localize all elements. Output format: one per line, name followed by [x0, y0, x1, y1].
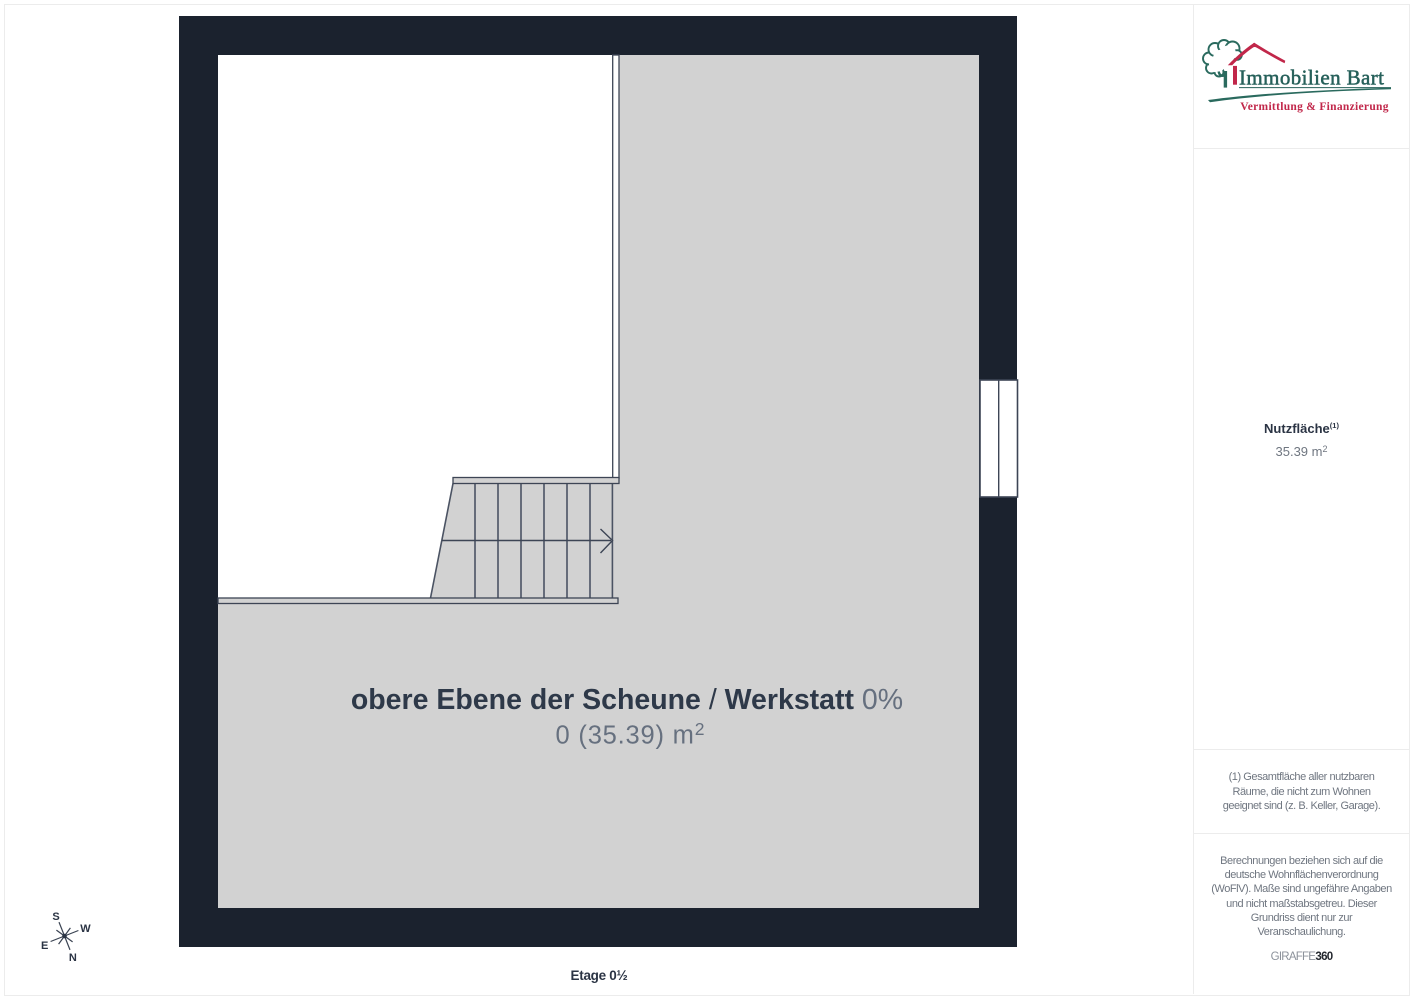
- svg-text:obere Ebene der Scheune / Werk: obere Ebene der Scheune / Werkstatt 0%: [351, 684, 903, 716]
- svg-text:S: S: [52, 911, 59, 923]
- svg-text:E: E: [41, 940, 48, 952]
- svg-text:Vermittlung & Finanzierung: Vermittlung & Finanzierung: [1240, 101, 1389, 113]
- svg-text:Immobilien Bart: Immobilien Bart: [1239, 66, 1384, 90]
- svg-text:0 (35.39) m2: 0 (35.39) m2: [556, 719, 705, 750]
- svg-text:N: N: [69, 952, 77, 964]
- svg-text:W: W: [80, 923, 91, 935]
- svg-text:Etage 0½: Etage 0½: [571, 968, 628, 983]
